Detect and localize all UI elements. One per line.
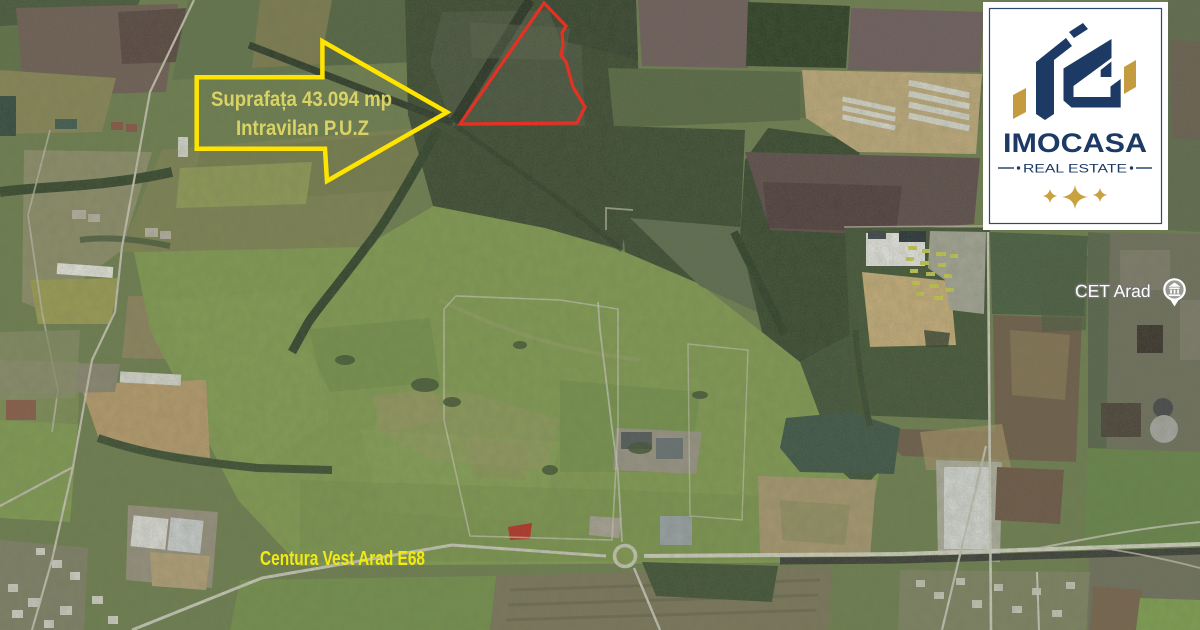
- svg-text:Centura Vest Arad E68: Centura Vest Arad E68: [260, 547, 425, 570]
- svg-text:Suprafața 43.094 mp: Suprafața 43.094 mp: [211, 87, 392, 111]
- svg-text:REAL ESTATE: REAL ESTATE: [1023, 164, 1127, 176]
- svg-text:Intravilan P.U.Z: Intravilan P.U.Z: [236, 116, 369, 140]
- svg-text:IMOCASA: IMOCASA: [1003, 128, 1147, 158]
- svg-text:CET Arad: CET Arad: [1075, 281, 1151, 301]
